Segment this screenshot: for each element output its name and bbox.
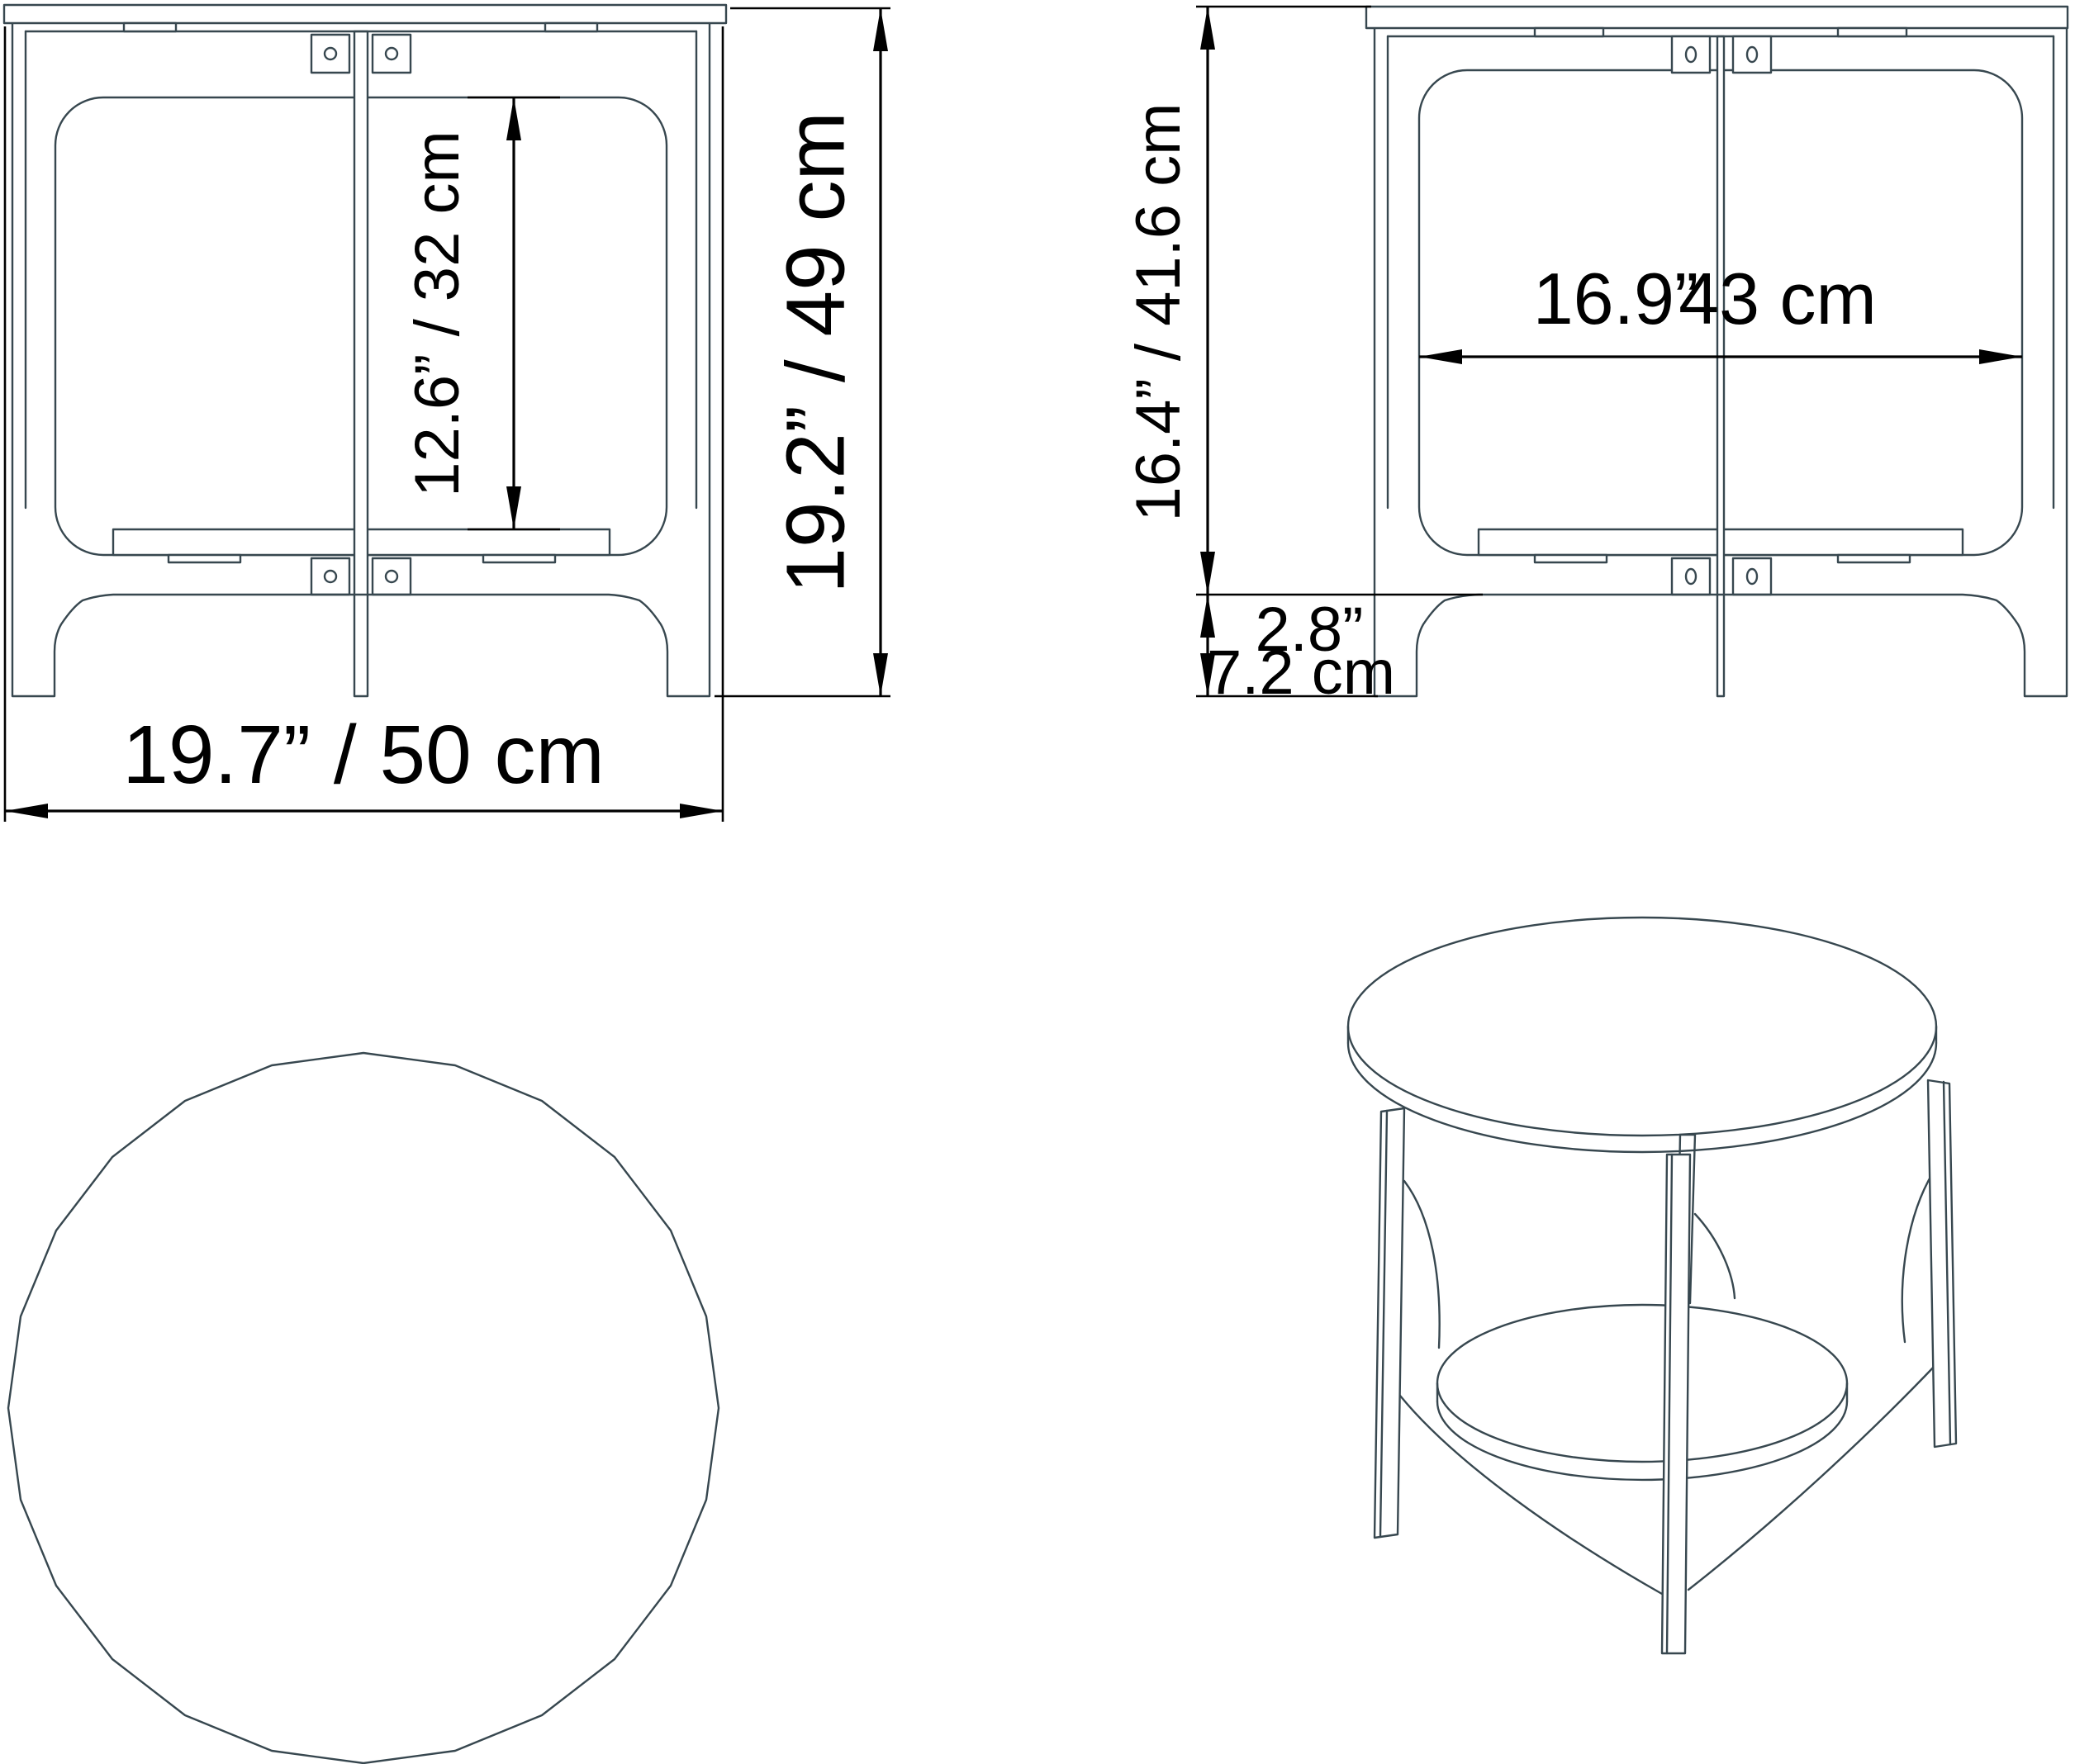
front-top-notch: [545, 23, 597, 31]
top-view: [8, 1053, 719, 1763]
persp-right-leg: [1928, 1080, 1956, 1447]
front-top-bracket: [311, 35, 349, 73]
persp-tabletop: [1348, 918, 1936, 1136]
front-bottom-bracket: [373, 558, 411, 595]
drawing-sheet: 12.6” / 32 cm 19.2” / 49 cm 19.7” / 50 c…: [0, 0, 2075, 1764]
dim-label-inner-width-cm: 43 cm: [1679, 258, 1877, 339]
dim-label-height: 19.2” / 49 cm: [769, 111, 862, 594]
tabletop-circle: [8, 1053, 719, 1763]
front-center-panel-edge: [354, 31, 368, 696]
front-top-bracket: [373, 35, 411, 73]
persp-right-panel-arch: [1902, 1173, 1933, 1342]
dim-label-width: 19.7” / 50 cm: [122, 709, 605, 801]
dim-label-inner-width-inches: 16.9”: [1533, 258, 1699, 339]
side-center-panel-edge: [1717, 36, 1724, 696]
side-top-bracket: [1733, 36, 1771, 73]
side-bottom-bracket: [1672, 558, 1710, 595]
side-bottom-bracket: [1733, 558, 1771, 595]
front-bottom-bracket: [311, 558, 349, 595]
front-shelf-notch: [169, 555, 240, 562]
dim-upper-height: 16.4” / 41.6 cm: [1123, 7, 1483, 595]
perspective-view: [1348, 918, 1956, 1653]
side-view: [1366, 7, 2068, 696]
dim-height-overall: 19.2” / 49 cm: [715, 8, 890, 696]
persp-back-panel-arch: [1695, 1214, 1735, 1298]
technical-drawing: 12.6” / 32 cm 19.2” / 49 cm 19.7” / 50 c…: [0, 0, 2075, 1764]
side-top-notch: [1838, 28, 1906, 36]
front-shelf-notch: [483, 555, 555, 562]
side-tabletop: [1366, 7, 2068, 28]
persp-shelf-top: [1437, 1305, 1847, 1462]
side-top-bracket: [1672, 36, 1710, 73]
front-view: [4, 5, 726, 696]
dim-label-foot-cm: 7.2 cm: [1207, 638, 1395, 708]
side-shelf-notch: [1838, 555, 1910, 562]
front-tabletop: [4, 5, 726, 23]
front-top-notch: [124, 23, 176, 31]
dim-shelf-clearance: 12.6” / 32 cm: [402, 97, 560, 529]
dim-foot-height: 2.8” 7.2 cm: [1196, 595, 1395, 708]
persp-left-leg: [1375, 1108, 1404, 1538]
dim-label-upper-height: 16.4” / 41.6 cm: [1123, 103, 1194, 522]
dim-label-shelf-clearance: 12.6” / 32 cm: [402, 130, 472, 497]
side-top-notch: [1535, 28, 1603, 36]
persp-front-leg: [1662, 1155, 1690, 1653]
side-shelf-notch: [1535, 555, 1607, 562]
persp-left-panel-arch: [1404, 1181, 1440, 1348]
